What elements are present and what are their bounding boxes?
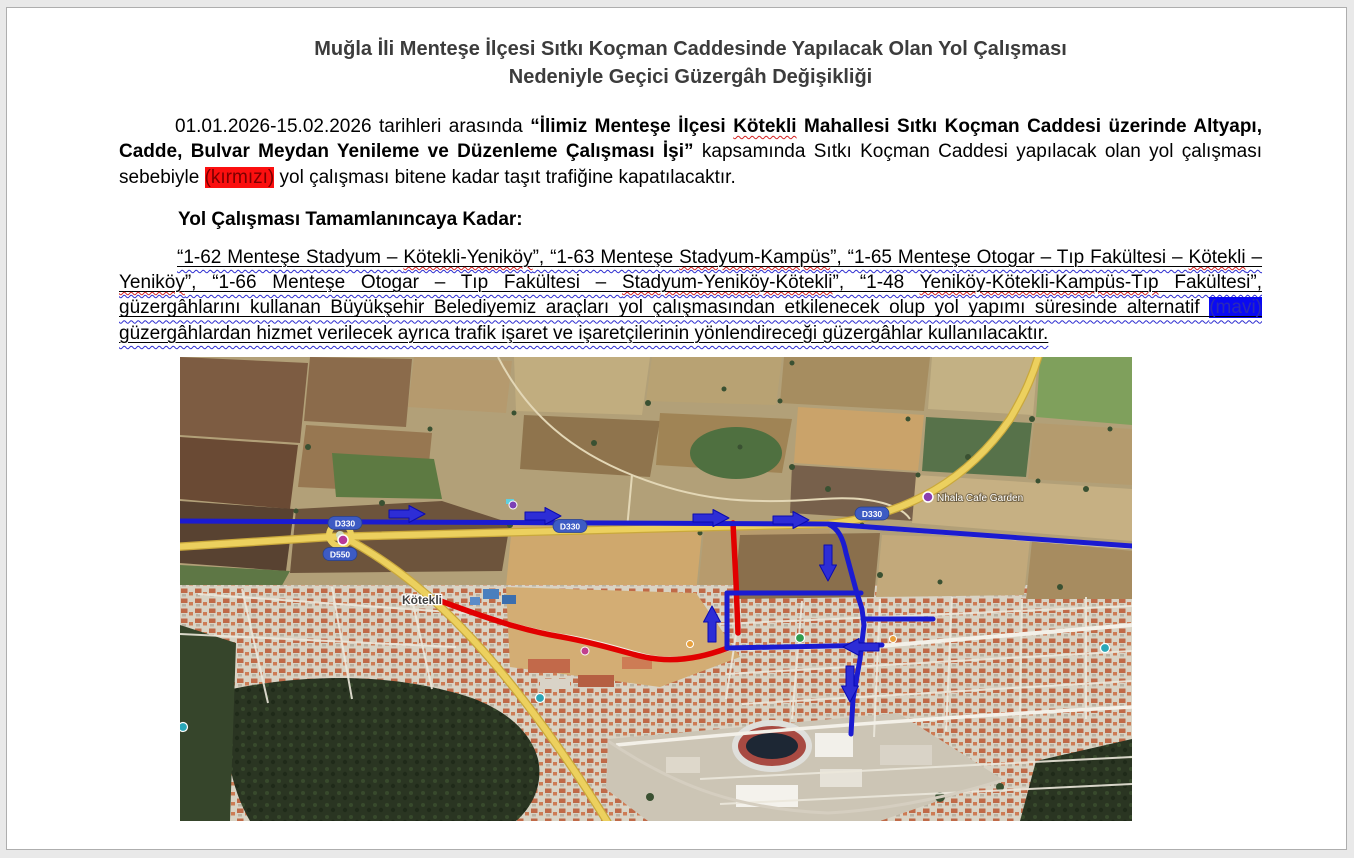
intro-text-end: yol çalışması bitene kadar taşıt trafiği… bbox=[274, 167, 736, 188]
route-name: Yeniköy-Kötekli-Kampüs-Tıp bbox=[920, 272, 1159, 293]
routes-paragraph: “1-62 Menteşe Stadyum – Kötekli-Yeniköy”… bbox=[119, 245, 1262, 346]
date-range-text: 01.01.2026-15.02.2026 tarihleri arasında bbox=[175, 116, 530, 137]
svg-text:D550: D550 bbox=[330, 550, 351, 560]
route-name: Yeniköy bbox=[119, 272, 185, 293]
blue-highlight: (mavi) bbox=[1209, 297, 1262, 318]
d330-shield: D330 bbox=[855, 507, 889, 520]
park-marker-icon bbox=[796, 634, 805, 643]
route-text: – bbox=[1246, 247, 1262, 268]
cafe-marker: Nhala Cafe Garden bbox=[923, 492, 1023, 504]
d550-shield: D550 bbox=[323, 548, 357, 561]
satellite-map: D330 D330 D330 D550 bbox=[180, 357, 1132, 821]
red-highlight: (kırmızı) bbox=[205, 167, 275, 188]
title-line-2: Nedeniyle Geçici Güzergâh Değişikliği bbox=[119, 63, 1262, 91]
poi-marker-icon bbox=[890, 636, 897, 643]
poi-marker-icon bbox=[687, 641, 694, 648]
spellcheck-word: Kötekli bbox=[733, 116, 796, 137]
cafe-marker-icon bbox=[923, 492, 933, 502]
svg-text:D330: D330 bbox=[560, 522, 581, 532]
document-content: Muğla İli Menteşe İlçesi Sıtkı Koçman Ca… bbox=[7, 8, 1346, 821]
route-name: Kötekli bbox=[1189, 247, 1246, 268]
poi-marker-icon bbox=[509, 501, 517, 509]
poi-marker-icon bbox=[536, 694, 545, 703]
poi-marker-icon bbox=[1101, 644, 1110, 653]
svg-text:D330: D330 bbox=[335, 519, 356, 529]
route-text: ”, “1-66 Menteşe Otogar – Tıp Fakültesi … bbox=[185, 272, 622, 293]
route-text-end: güzergâhlardan hizmet verilecek ayrıca t… bbox=[119, 323, 1048, 344]
route-name: Stadyum-Yeniköy-Kötekli bbox=[622, 272, 833, 293]
forest-strip-west bbox=[180, 625, 236, 821]
d330-shield: D330 bbox=[553, 520, 587, 533]
section-heading: Yol Çalışması Tamamlanıncaya Kadar: bbox=[178, 207, 1262, 232]
route-map-image: D330 D330 D330 D550 bbox=[180, 357, 1132, 821]
route-text: ”, “1-63 Menteşe bbox=[533, 247, 680, 268]
poi-marker-icon bbox=[180, 723, 188, 732]
hotel-marker-icon bbox=[338, 535, 348, 545]
route-text: “1-62 Menteşe Stadyum – bbox=[177, 247, 403, 268]
d330-shield: D330 bbox=[328, 517, 362, 530]
route-text: ”, “1-65 Menteşe Otogar – Tıp Fakültesi … bbox=[830, 247, 1188, 268]
document-page: Muğla İli Menteşe İlçesi Sıtkı Koçman Ca… bbox=[6, 7, 1347, 850]
svg-text:D330: D330 bbox=[862, 509, 883, 519]
bold-work-name: “İlimiz Menteşe İlçesi bbox=[530, 116, 733, 137]
title-line-1: Muğla İli Menteşe İlçesi Sıtkı Koçman Ca… bbox=[119, 35, 1262, 63]
document-title: Muğla İli Menteşe İlçesi Sıtkı Koçman Ca… bbox=[119, 8, 1262, 91]
cafe-label: Nhala Cafe Garden bbox=[937, 493, 1023, 504]
intro-paragraph: 01.01.2026-15.02.2026 tarihleri arasında… bbox=[119, 114, 1262, 190]
route-text: ”, “1-48 bbox=[833, 272, 920, 293]
poi-marker-icon bbox=[581, 647, 589, 655]
route-name: Kötekli-Yeniköy bbox=[403, 247, 532, 268]
route-name: Stadyum-Kampüs bbox=[679, 247, 830, 268]
kotekli-label: Kötekli bbox=[402, 593, 442, 607]
